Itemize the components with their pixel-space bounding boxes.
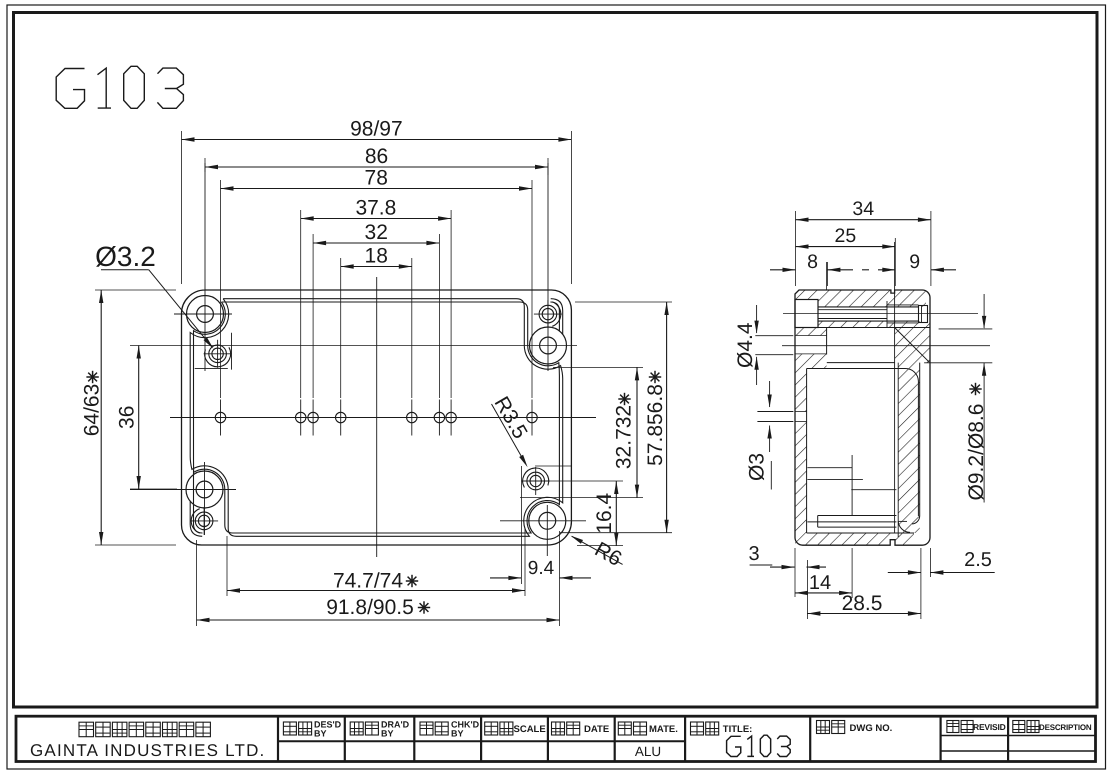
svg-text:74.7/74: 74.7/74 [333, 570, 403, 593]
svg-text:Ø4.4: Ø4.4 [734, 322, 757, 368]
svg-text:57.856.8: 57.856.8 [644, 384, 667, 466]
svg-text:TITLE:: TITLE: [723, 724, 753, 735]
svg-text:18: 18 [365, 245, 388, 268]
svg-text:64/63: 64/63 [81, 384, 104, 437]
svg-text:9: 9 [909, 251, 920, 273]
svg-text:16.4: 16.4 [593, 493, 616, 534]
svg-text:2.5: 2.5 [964, 549, 992, 571]
svg-text:Ø3: Ø3 [746, 453, 769, 481]
svg-text:REVISID: REVISID [973, 722, 1006, 732]
svg-text:28.5: 28.5 [842, 592, 883, 615]
svg-text:36: 36 [115, 406, 138, 429]
svg-text:BY: BY [381, 729, 394, 739]
svg-text:DWG NO.: DWG NO. [850, 723, 893, 734]
svg-text:DATE: DATE [584, 724, 609, 735]
svg-text:14: 14 [809, 572, 831, 594]
svg-text:Ø3.2: Ø3.2 [95, 241, 156, 272]
svg-text:32.732: 32.732 [613, 405, 636, 469]
svg-text:86: 86 [365, 145, 388, 168]
svg-text:GAINTA INDUSTRIES LTD.: GAINTA INDUSTRIES LTD. [30, 741, 265, 760]
svg-text:34: 34 [852, 198, 874, 220]
svg-text:BY: BY [314, 729, 327, 739]
svg-text:78: 78 [365, 167, 388, 190]
svg-text:3: 3 [748, 543, 759, 565]
svg-text:37.8: 37.8 [355, 197, 396, 220]
svg-text:98/97: 98/97 [350, 118, 403, 141]
svg-text:MATE.: MATE. [649, 724, 678, 735]
svg-text:Ø9.2/Ø8.6: Ø9.2/Ø8.6 [965, 404, 988, 501]
svg-text:BY: BY [451, 729, 464, 739]
svg-text:DESCRIPTION: DESCRIPTION [1039, 723, 1092, 732]
svg-text:91.8/90.5: 91.8/90.5 [326, 596, 414, 619]
svg-text:ALU: ALU [635, 744, 661, 759]
svg-text:25: 25 [835, 225, 857, 247]
svg-text:8: 8 [807, 251, 818, 273]
svg-text:32: 32 [365, 221, 388, 244]
svg-text:SCALE: SCALE [514, 724, 546, 735]
svg-text:9.4: 9.4 [528, 558, 555, 579]
